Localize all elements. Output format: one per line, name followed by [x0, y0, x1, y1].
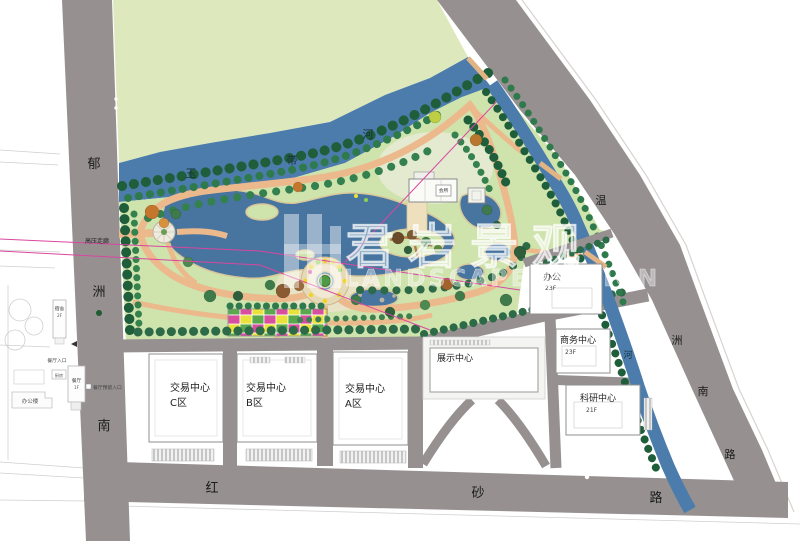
building-exhibition: 展示中心 — [423, 337, 545, 399]
road-south-char-1: 砂 — [471, 486, 484, 501]
river-char-0: 玉 — [186, 167, 197, 180]
road-east-char-0: 温 — [596, 194, 607, 207]
island-small — [246, 204, 278, 220]
canteen-entrance-label: 餐厅入口 — [47, 357, 66, 364]
hv-corridor-label: 高压走廊 — [85, 237, 109, 245]
road-inner-r6 — [550, 316, 556, 468]
building-business: 商务中心 23F — [556, 329, 610, 373]
road-east-char-1: 洲 — [672, 334, 683, 347]
kitchen-label: 厨房 — [55, 372, 63, 379]
dropoff-arc-left — [423, 400, 472, 464]
trade-a-zone: A区 — [345, 398, 362, 410]
dropoff-arc-right — [498, 400, 546, 466]
road-west-char-2: 南 — [97, 418, 110, 434]
dormitory-floors: 2F — [57, 313, 63, 318]
trade-a-name: 交易中心 — [345, 382, 385, 395]
road-east-char-2: 南 — [698, 385, 709, 398]
watermark-en: LANDSCAPE DESIGN — [344, 266, 661, 292]
clubhouse-label: 会所 — [439, 187, 449, 194]
business-floors: 23F — [565, 349, 577, 356]
office-building-label: 办公楼 — [22, 397, 39, 405]
street-tree-dot — [96, 310, 102, 316]
river-char-1: 带 — [287, 154, 298, 167]
building-trade-a: 交易中心 A区 — [333, 352, 408, 463]
canteen-floors: 1F — [74, 385, 80, 390]
dormitory-label: 宿舍 — [55, 305, 65, 312]
canal-char: 河 — [623, 349, 632, 361]
exhibition-name: 展示中心 — [437, 352, 473, 364]
road-south-char-2: 路 — [649, 490, 662, 506]
building-trade-b: 交易中心 B区 — [237, 354, 317, 461]
road-west-char-0: 郁 — [87, 157, 100, 172]
masterplan-canvas: 会所 交易中心 C区 交易中心 B区 — [0, 0, 800, 541]
road-west-char-1: 洲 — [92, 285, 105, 300]
research-name: 科研中心 — [580, 392, 616, 404]
road-south-char-0: 红 — [205, 480, 218, 496]
road-inner-r1 — [120, 343, 420, 346]
canteen-label: 餐厅 — [72, 377, 82, 384]
business-name: 商务中心 — [560, 334, 596, 346]
trade-c-name: 交易中心 — [170, 381, 210, 394]
river-char-2: 河 — [363, 128, 374, 141]
road-east-char-3: 路 — [725, 448, 736, 461]
road-inner-r8 — [556, 380, 642, 383]
trade-c-zone: C区 — [170, 397, 187, 409]
building-trade-c: 交易中心 C区 — [149, 354, 223, 461]
trade-b-name: 交易中心 — [246, 381, 286, 394]
site-plan: 会所 交易中心 C区 交易中心 B区 — [0, 0, 800, 541]
entrance-arrow — [71, 341, 77, 347]
research-floors: 21F — [586, 407, 598, 414]
trade-b-zone: B区 — [246, 397, 263, 409]
canteen-reserved-entrance-label: 餐厅预留入口 — [93, 384, 122, 391]
building-research: 科研中心 21F — [566, 385, 652, 435]
